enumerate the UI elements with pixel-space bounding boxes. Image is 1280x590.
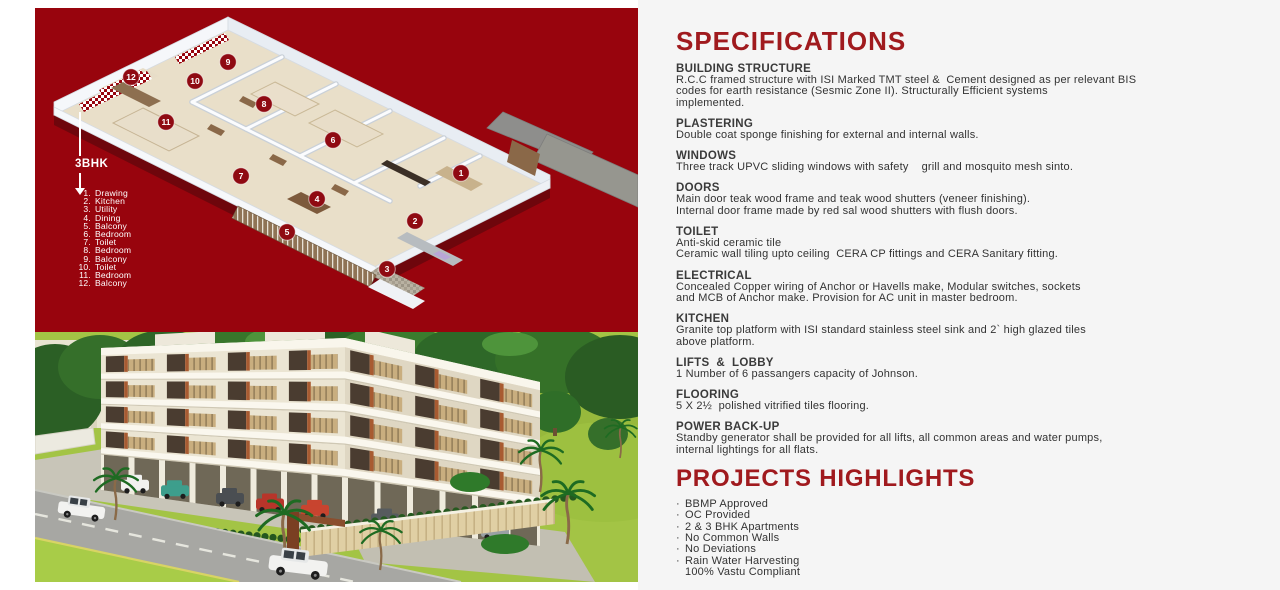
unit-type-text: 3BHK bbox=[75, 158, 108, 170]
spec-section-line: Granite top platform with ISI standard s… bbox=[676, 325, 1186, 336]
spec-section-line: implemented. bbox=[676, 98, 1186, 109]
highlight-item: ·BBMP Approved bbox=[676, 499, 1186, 510]
svg-text:6: 6 bbox=[331, 135, 336, 145]
spec-section-line: 5 X 2½ polished vitrified tiles flooring… bbox=[676, 401, 1186, 412]
spec-section-line: 1 Number of 6 passangers capacity of Joh… bbox=[676, 369, 1186, 380]
spec-section-line: and MCB of Anchor make. Provision for AC… bbox=[676, 293, 1186, 304]
svg-text:10: 10 bbox=[190, 76, 200, 86]
room-marker: 12 bbox=[123, 69, 140, 86]
room-marker: 2 bbox=[407, 213, 424, 230]
building-photo-panel bbox=[35, 332, 638, 582]
specifications-title: SPECIFICATIONS bbox=[676, 26, 1186, 57]
room-marker: 5 bbox=[279, 224, 296, 241]
bullet-icon: · bbox=[676, 544, 685, 555]
spec-sections: BUILDING STRUCTURER.C.C framed structure… bbox=[676, 63, 1186, 456]
legend-room-name: Balcony bbox=[95, 279, 127, 287]
bullet-icon: · bbox=[676, 556, 685, 567]
spec-section: PLASTERINGDouble coat sponge finishing f… bbox=[676, 118, 1186, 141]
room-marker: 11 bbox=[158, 114, 175, 131]
spec-section-line: Ceramic wall tiling upto ceiling CERA CP… bbox=[676, 249, 1186, 260]
svg-text:2: 2 bbox=[413, 216, 418, 226]
spec-section: ELECTRICALConcealed Copper wiring of Anc… bbox=[676, 270, 1186, 305]
highlight-item: ·OC Provided bbox=[676, 510, 1186, 521]
bullet-icon: · bbox=[676, 510, 685, 521]
spec-section-line: internal lightings for all flats. bbox=[676, 445, 1186, 456]
spec-section-heading: ELECTRICAL bbox=[676, 270, 1186, 282]
spec-section: DOORSMain door teak wood frame and teak … bbox=[676, 182, 1186, 217]
room-marker: 9 bbox=[220, 54, 237, 71]
left-panel: 123456789101112 3BHK 1.Drawing2.Kitchen3… bbox=[35, 8, 638, 582]
room-marker: 4 bbox=[309, 191, 326, 208]
room-marker: 6 bbox=[325, 132, 342, 149]
arrow-shaft bbox=[79, 173, 81, 188]
highlight-item: ·No Deviations bbox=[676, 544, 1186, 555]
floorplan-panel: 123456789101112 3BHK 1.Drawing2.Kitchen3… bbox=[35, 8, 638, 332]
highlights-title: PROJECTS HIGHLIGHTS bbox=[676, 465, 1186, 493]
spec-section-line: Three track UPVC sliding windows with sa… bbox=[676, 162, 1186, 173]
specs-column: SPECIFICATIONS BUILDING STRUCTURER.C.C f… bbox=[676, 26, 1186, 578]
spec-section: BUILDING STRUCTURER.C.C framed structure… bbox=[676, 63, 1186, 109]
room-marker: 8 bbox=[256, 96, 273, 113]
room-marker: 7 bbox=[233, 168, 250, 185]
highlights-list: ·BBMP Approved·OC Provided·2 & 3 BHK Apa… bbox=[676, 499, 1186, 578]
svg-text:9: 9 bbox=[226, 57, 231, 67]
spec-section: FLOORING5 X 2½ polished vitrified tiles … bbox=[676, 389, 1186, 412]
svg-text:3: 3 bbox=[385, 264, 390, 274]
brochure-page: 123456789101112 3BHK 1.Drawing2.Kitchen3… bbox=[0, 0, 1280, 590]
highlight-text: OC Provided bbox=[685, 510, 750, 521]
spec-section-line: Internal door frame made by red sal wood… bbox=[676, 206, 1186, 217]
svg-text:4: 4 bbox=[315, 194, 320, 204]
spec-section-line: Double coat sponge finishing for externa… bbox=[676, 130, 1186, 141]
svg-text:5: 5 bbox=[285, 227, 290, 237]
spec-section: WINDOWSThree track UPVC sliding windows … bbox=[676, 150, 1186, 173]
building-rendering bbox=[35, 332, 638, 582]
svg-text:7: 7 bbox=[239, 171, 244, 181]
svg-text:8: 8 bbox=[262, 99, 267, 109]
spec-section: TOILETAnti-skid ceramic tileCeramic wall… bbox=[676, 226, 1186, 261]
spec-section: LIFTS & LOBBY1 Number of 6 passangers ca… bbox=[676, 357, 1186, 380]
room-marker: 1 bbox=[453, 165, 470, 182]
svg-text:12: 12 bbox=[126, 72, 136, 82]
svg-text:11: 11 bbox=[161, 117, 170, 127]
spec-section-line: above platform. bbox=[676, 337, 1186, 348]
spec-section: KITCHENGranite top platform with ISI sta… bbox=[676, 313, 1186, 348]
spec-section: POWER BACK-UPStandby generator shall be … bbox=[676, 421, 1186, 456]
legend-item: 12.Balcony bbox=[69, 279, 131, 287]
legend-number: 12. bbox=[69, 279, 91, 287]
room-marker: 3 bbox=[379, 261, 396, 278]
highlight-sub-item: 100% Vastu Compliant bbox=[676, 567, 1186, 578]
pointer-line bbox=[79, 112, 81, 156]
floorplan-legend: 1.Drawing2.Kitchen3.Utility4.Dining5.Bal… bbox=[69, 189, 131, 287]
spec-section-line: codes for earth resistance (Sesmic Zone … bbox=[676, 86, 1186, 97]
svg-text:1: 1 bbox=[459, 168, 464, 178]
highlight-text: No Deviations bbox=[685, 544, 756, 555]
room-marker: 10 bbox=[187, 73, 204, 90]
